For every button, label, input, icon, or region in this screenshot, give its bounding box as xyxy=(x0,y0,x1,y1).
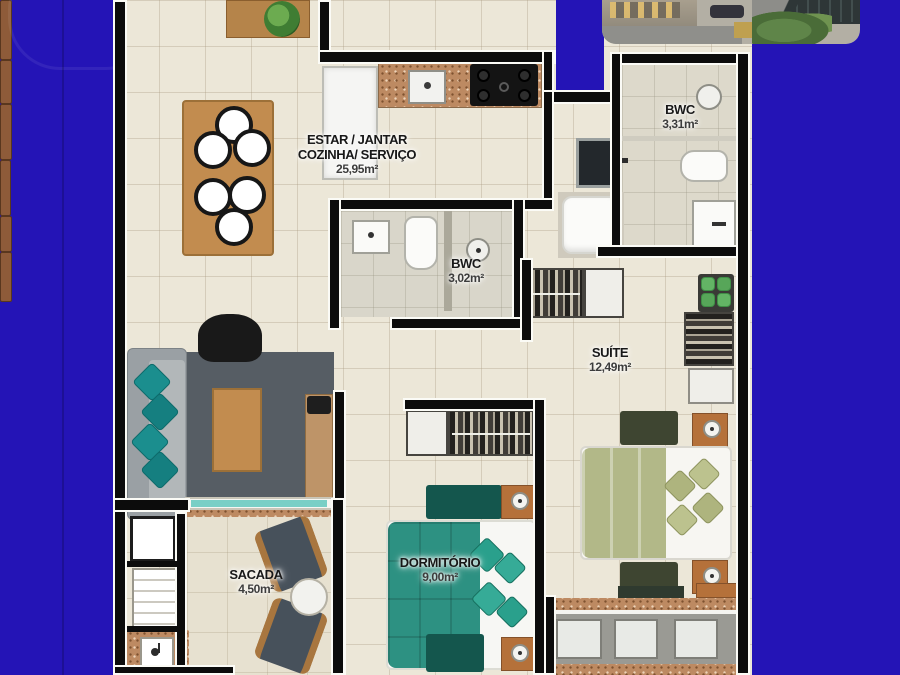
room-label-bwc-middle: BWC 3,02m² xyxy=(412,250,520,292)
wall-bwc-left xyxy=(610,52,622,258)
room-label-dormitorio: DORMITÓRIO 9,00m² xyxy=(372,548,508,592)
burner-icon xyxy=(477,69,490,82)
wall-bottom-left xyxy=(113,665,235,675)
sacada-name: SACADA xyxy=(229,567,282,582)
room-label-suite: SUÍTE 12,49m² xyxy=(550,338,670,382)
suite-door xyxy=(0,160,11,216)
room-label-sacada: SACADA 4,50m² xyxy=(196,560,316,604)
wall-corridor-left xyxy=(542,90,554,208)
bwc-middle-area: 3,02m² xyxy=(448,271,484,286)
wall-bwc-top xyxy=(610,52,750,65)
wall-right-outer xyxy=(736,52,750,675)
armchair xyxy=(198,314,262,362)
wall-bwc-bottom xyxy=(596,245,750,258)
suite-wardrobe-cabinet xyxy=(584,268,624,318)
wall-bwc2-left xyxy=(328,198,341,330)
suite-cabinet xyxy=(688,368,734,404)
living-name-line2: COZINHA/ SERVIÇO xyxy=(298,147,416,162)
living-area: 25,95m² xyxy=(336,162,378,177)
bwc-top-door xyxy=(0,60,12,104)
plant-icon xyxy=(264,1,300,37)
dorm-wardrobe xyxy=(448,410,534,456)
burner-icon xyxy=(518,69,531,82)
building-photo-thumbnail xyxy=(602,0,860,44)
suite-rug xyxy=(620,411,678,445)
burner-icon xyxy=(477,89,490,102)
bwc-middle-name: BWC xyxy=(451,256,481,271)
plant-icon xyxy=(701,277,715,291)
photo-car xyxy=(710,5,744,18)
suite-name: SUÍTE xyxy=(592,345,628,360)
dorm-rug xyxy=(426,485,502,519)
balcony-sill xyxy=(546,598,738,610)
washer-unit xyxy=(132,568,178,628)
window-pane xyxy=(674,619,718,659)
plate-icon xyxy=(233,129,271,167)
wall-balcony-left xyxy=(544,595,556,675)
plant-icon xyxy=(717,293,731,307)
photo-tree xyxy=(752,10,832,44)
photo-lit-windows xyxy=(610,2,680,18)
balcony-edge xyxy=(546,664,738,675)
burner-icon xyxy=(518,89,531,102)
tv-icon xyxy=(307,396,331,414)
sink-faucet-icon xyxy=(424,82,431,89)
dorm-rug xyxy=(426,634,484,672)
suite-area: 12,49m² xyxy=(589,360,631,375)
plan-notch xyxy=(556,0,604,90)
dormitorio-area: 9,00m² xyxy=(422,570,458,585)
vanity-faucet-icon xyxy=(712,222,726,226)
suite-bed-blanket xyxy=(582,448,666,558)
cooktop-knob-icon xyxy=(499,82,509,92)
suite-balcony-door xyxy=(0,252,12,302)
toilet xyxy=(680,150,728,182)
lamp-icon xyxy=(511,492,529,510)
window-glass xyxy=(191,500,327,507)
room-label-living: ESTAR / JANTAR COZINHA/ SERVIÇO 25,95m² xyxy=(272,126,442,182)
background-seam xyxy=(62,0,64,675)
lamp-icon xyxy=(703,420,721,438)
bwc-top-name: BWC xyxy=(665,102,695,117)
plate-icon xyxy=(215,208,253,246)
wall-nook-divider xyxy=(127,561,177,567)
lamp-icon xyxy=(511,644,529,662)
suite-wardrobe-right xyxy=(684,312,734,366)
coffee-table xyxy=(212,388,262,472)
wall-nook-right xyxy=(175,512,187,675)
wall-kitchen-top xyxy=(318,50,556,64)
wall-left-outer xyxy=(113,0,127,675)
floor-plan-page: ESTAR / JANTAR COZINHA/ SERVIÇO 25,95m² … xyxy=(0,0,900,675)
sacada-area: 4,50m² xyxy=(238,582,274,597)
dorm-wardrobe-cabinet xyxy=(406,410,448,456)
wall-sacada-top xyxy=(113,498,190,512)
plate-icon xyxy=(194,131,232,169)
wall-dorm-top xyxy=(403,398,546,411)
plant-icon xyxy=(717,277,731,291)
suite-dresser xyxy=(696,583,738,598)
wall-nook-divider xyxy=(127,626,179,632)
wall-sacada-right xyxy=(331,498,345,675)
tank-faucet-stem xyxy=(158,643,160,653)
dormitorio-name: DORMITÓRIO xyxy=(400,555,481,570)
wall-bwc2-bottom xyxy=(390,317,525,330)
wall-suite-left xyxy=(520,258,533,342)
window-pane xyxy=(614,619,658,659)
suite-tv-rack xyxy=(618,586,684,598)
dorm-door xyxy=(0,104,12,160)
window-pane xyxy=(556,619,602,659)
room-label-bwc-top: BWC 3,31m² xyxy=(628,96,732,138)
entry-door xyxy=(0,216,12,252)
plant-icon xyxy=(701,293,715,307)
photo-street xyxy=(602,26,742,44)
bwc-top-area: 3,31m² xyxy=(662,117,698,132)
living-name-line1: ESTAR / JANTAR xyxy=(307,132,407,147)
freezer-unit xyxy=(130,516,176,562)
sink-faucet-icon xyxy=(368,232,374,238)
